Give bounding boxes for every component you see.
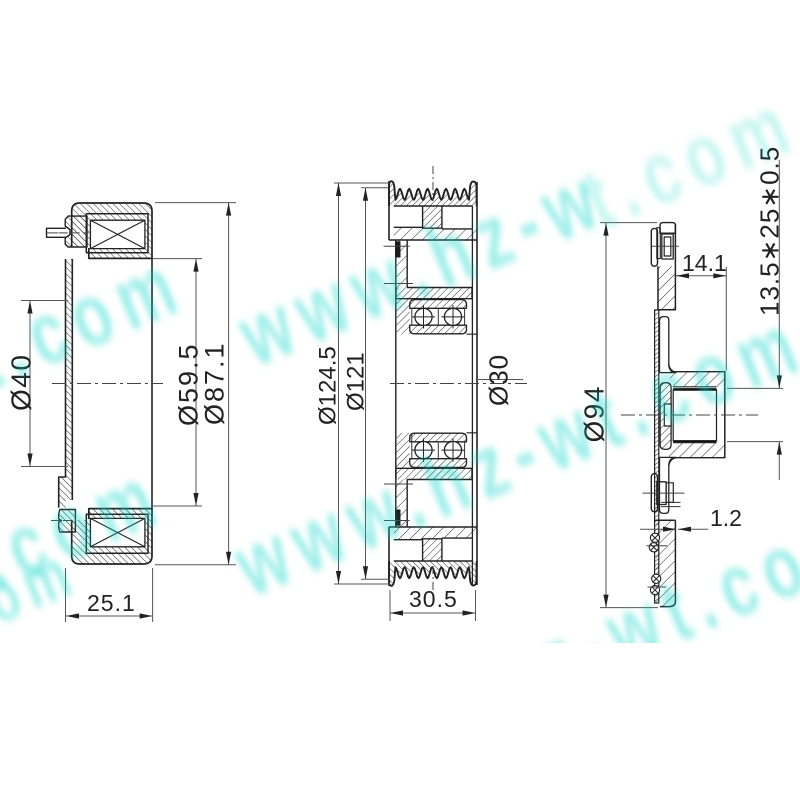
svg-text:30.5: 30.5 xyxy=(409,586,458,612)
svg-text:14.1: 14.1 xyxy=(682,250,727,276)
svg-text:Ø59.5: Ø59.5 xyxy=(174,342,204,426)
svg-text:Ø30: Ø30 xyxy=(484,354,514,406)
svg-text:Ø121: Ø121 xyxy=(343,352,370,411)
svg-text:Ø87.1: Ø87.1 xyxy=(200,341,230,425)
svg-text:1.2: 1.2 xyxy=(710,505,742,531)
svg-text:25.1: 25.1 xyxy=(87,590,136,616)
